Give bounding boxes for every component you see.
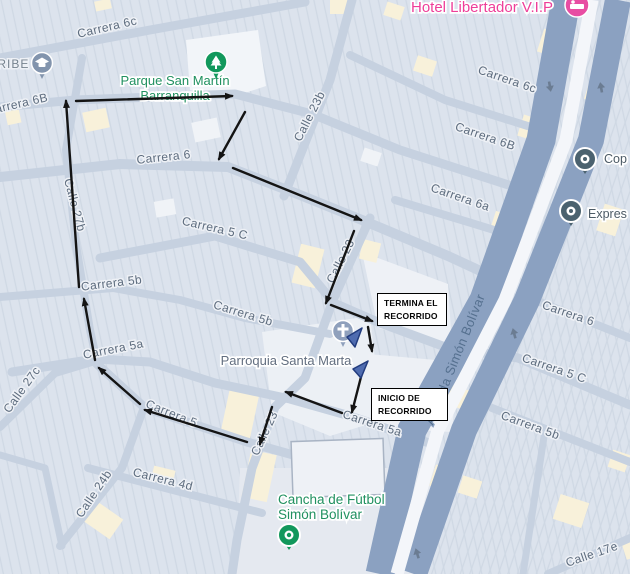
transit-pin-dot — [583, 157, 587, 161]
callout-termina-line1: TERMINA EL — [384, 297, 440, 310]
callout-inicio-line1: INICIO DE — [378, 392, 441, 405]
bed-icon — [570, 4, 584, 9]
callout-termina-el-recorrido: TERMINA EL RECORRIDO — [377, 293, 447, 326]
poi-label-expres[interactable]: Expres — [588, 207, 627, 221]
street-label: CARIBE — [0, 57, 29, 71]
poi-label-line: Simón Bolívar — [278, 507, 363, 522]
transit-pin-dot — [569, 209, 573, 213]
poi-label-line: Parroquia Santa Marta — [221, 353, 353, 368]
callout-inicio-de-recorrido: INICIO DE RECORRIDO — [371, 388, 448, 421]
building-white — [154, 198, 176, 217]
poi-label-line: Cop — [604, 152, 627, 166]
poi-label-line: Expres — [588, 207, 627, 221]
poi-label-line: Parque San Martín — [120, 73, 229, 88]
poi-label-parroquia-santa-marta[interactable]: Parroquia Santa Marta — [221, 353, 353, 368]
poi-label-hotel-libertador[interactable]: Hotel Libertador V.I.P — [411, 0, 553, 16]
poi-label-line: Hotel Libertador V.I.P — [411, 0, 553, 16]
sports-pin-dot — [287, 533, 291, 537]
poi-label-line: Cancha de Fútbol — [278, 492, 385, 507]
poi-label-line: Barranquilla — [140, 88, 210, 103]
tree-icon — [215, 66, 217, 70]
building-outlined — [291, 438, 385, 497]
graduation-cap-icon — [39, 64, 46, 68]
poi-label-cop[interactable]: Cop — [604, 152, 627, 166]
hotel-pin[interactable] — [565, 0, 589, 17]
map-svg: Carrera 6cCARIBECarrera 6BCarrera 6Calle… — [0, 0, 630, 574]
bed-icon — [571, 0, 575, 4]
callout-inicio-line2: RECORRIDO — [378, 405, 441, 418]
map-canvas[interactable]: Carrera 6cCARIBECarrera 6BCarrera 6Calle… — [0, 0, 630, 574]
callout-termina-line2: RECORRIDO — [384, 310, 440, 323]
cross-icon — [338, 328, 349, 331]
